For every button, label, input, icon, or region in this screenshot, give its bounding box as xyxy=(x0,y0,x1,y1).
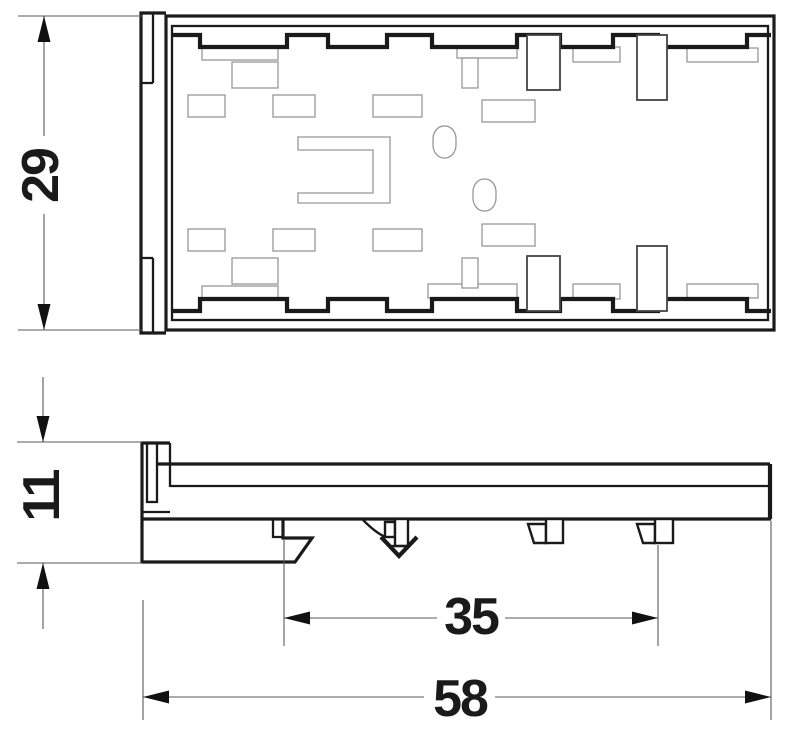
slot-rect xyxy=(462,258,478,288)
dim-11-arrow-up xyxy=(37,563,50,589)
dim-58-arrow-right xyxy=(745,691,771,704)
dim-label-overall-height: 29 xyxy=(15,149,67,203)
dim-29-arrow-down xyxy=(38,304,51,330)
dim-label-overall-width: 58 xyxy=(433,673,487,725)
slot-rect xyxy=(273,229,315,251)
rail-tab-square xyxy=(655,519,673,543)
stadium-hole xyxy=(433,126,456,158)
slot-rect xyxy=(373,95,422,117)
slot-rect xyxy=(273,95,315,117)
terminal-slot xyxy=(527,256,560,311)
din-latch-bar xyxy=(395,519,408,546)
slot-rect xyxy=(202,48,278,60)
slot-rect xyxy=(573,284,620,299)
slot-rect xyxy=(188,229,225,251)
rail-tab-flag xyxy=(637,524,655,543)
castellation-bottom xyxy=(172,299,771,311)
side-view-foot xyxy=(142,519,312,562)
slot-rect xyxy=(482,224,535,246)
bracket-cutout xyxy=(298,137,390,203)
dimension-drawing-page: 29 11 35 58 xyxy=(0,0,800,748)
din-latch-arc xyxy=(363,520,386,537)
stadium-hole xyxy=(473,179,496,211)
terminal-slot xyxy=(637,246,667,311)
din-latch-square xyxy=(385,522,395,537)
top-view-flange-tab-top xyxy=(141,13,153,83)
slot-rect xyxy=(462,58,478,88)
top-view-flange-tab-bottom xyxy=(141,258,153,333)
dim-35-arrow-right xyxy=(632,612,658,625)
slot-rect xyxy=(482,100,535,122)
slot-rect xyxy=(202,286,278,298)
slot-rect xyxy=(373,229,422,251)
dim-58-arrow-left xyxy=(143,691,169,704)
dim-11-arrow-down xyxy=(37,416,50,442)
slot-rect xyxy=(573,47,620,62)
terminal-slot xyxy=(637,35,667,100)
slot-rect xyxy=(687,48,758,62)
side-view-flange-bar xyxy=(147,443,157,502)
dim-29-arrow-up xyxy=(38,16,51,42)
slot-rect xyxy=(687,284,758,298)
slot-rect xyxy=(232,62,278,88)
dim-label-profile-height: 11 xyxy=(16,471,68,522)
dim-35-arrow-left xyxy=(284,612,310,625)
slot-rect xyxy=(232,258,278,284)
slot-rect xyxy=(188,95,225,117)
technical-drawing xyxy=(0,0,800,748)
rail-tab-square xyxy=(546,519,563,543)
dim-label-rail-span: 35 xyxy=(444,591,498,643)
castellation-top xyxy=(172,35,771,47)
rail-tab-flag xyxy=(528,524,546,543)
slot-rect xyxy=(457,48,517,58)
terminal-slot xyxy=(527,35,560,90)
